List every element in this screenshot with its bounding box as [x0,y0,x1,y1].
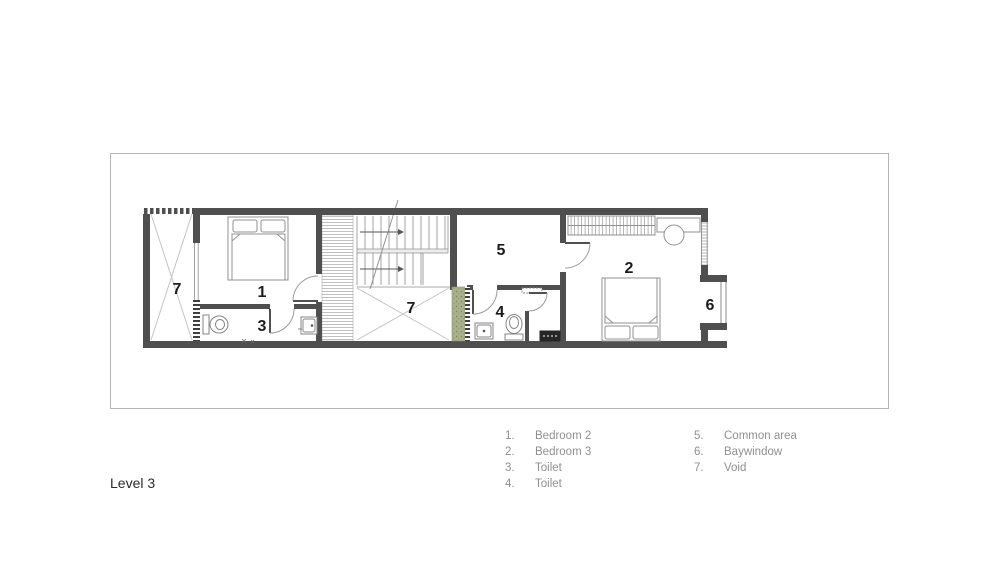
room-label-bedroom2: 2 [625,260,634,277]
bed2-mattress [605,278,657,323]
legend-column-2: 5. Common area 6. Baywindow 7. Void [694,428,797,476]
bed1-mattress [232,234,285,280]
stool-circle [664,225,684,245]
legend-num: 6. [694,444,724,460]
wall-baywindow-top [700,275,727,282]
wall-stair-right [450,215,457,290]
door-bedroom2 [565,243,590,268]
legend-label: Toilet [535,460,562,476]
door-toilet4-left [473,290,497,314]
wall-void-divider-upper [193,208,200,243]
wall-top-main [193,208,708,215]
legend-label: Void [724,460,746,476]
room-label-baywindow: 6 [706,297,715,314]
legend-label: Bedroom 3 [535,444,591,460]
door-toilet3 [270,309,294,333]
legend-item-bedroom3: 2. Bedroom 3 [505,444,591,460]
legend-num: 1. [505,428,535,444]
louver-top-void [143,208,193,214]
baywindow-glazing [721,282,726,323]
stair-arrowhead-lower [398,266,404,272]
legend-num: 5. [694,428,724,444]
window-bedroom1-left [193,243,200,300]
legend-num: 7. [694,460,724,476]
stair-arrowhead-upper [398,229,404,235]
wall-common-bedroom2-upper [560,215,566,243]
planter-strip [452,287,465,341]
stair-landing-rail [357,249,448,253]
legend-column-1: 1. Bedroom 2 2. Bedroom 3 3. Toilet 4. T… [505,428,591,492]
room-label-toilet4: 4 [496,304,505,321]
bedroom2-furniture [568,216,700,341]
room-label-toilet3: 3 [258,318,267,335]
legend-item-toilet3: 3. Toilet [505,460,591,476]
legend-item-baywindow: 6. Baywindow [694,444,797,460]
basin3-tap [311,324,314,327]
wall-bedroom2-right-bottom [701,330,708,341]
legend-num: 3. [505,460,535,476]
room-label-bedroom1: 1 [258,284,267,301]
louver-toilet3-left [193,300,200,341]
wall-toilet3-top-left [200,304,270,309]
legend-item-common-area: 5. Common area [694,428,797,444]
wall-toilet3-top-right [294,304,316,309]
basin4-tap [483,330,486,333]
legend-label: Baywindow [724,444,782,460]
room-label-common-area: 5 [497,242,506,259]
bed1-pillow-right [261,220,285,232]
toilet4-tank [505,334,523,340]
legend-num: 2. [505,444,535,460]
bed2-pillow-left [605,326,630,339]
legend-item-bedroom2: 1. Bedroom 2 [505,428,591,444]
toilet4-bowl-inner [510,317,519,329]
stair-core-hatch-strip [322,215,353,341]
legend-num: 4. [505,476,535,492]
room-label-void-stair: 7 [407,300,416,317]
legend-label: Common area [724,428,797,444]
wall-bedroom1-right-upper [316,215,322,274]
room-label-void-left: 7 [173,281,182,298]
door-bedroom1 [293,276,318,301]
toilet3-tank [203,315,209,334]
bed1-pillow-left [233,220,257,232]
void-left-xbrace [151,214,192,340]
toilet3-bowl-inner [216,320,225,330]
wall-bedroom2-right-top [701,215,708,222]
void-stair-xbrace [357,287,450,340]
wall-toilet4-right-lower [525,311,529,341]
wall-left-end [143,208,150,348]
legend-item-toilet4: 4. Toilet [505,476,591,492]
bed-bedroom1 [228,217,288,280]
wall-baywindow-bottom [700,323,727,330]
bed2-pillow-right [633,326,658,339]
legend-label: Bedroom 2 [535,428,591,444]
door-toilet4-right [529,293,547,311]
wall-bottom-main [143,341,727,348]
level-title: Level 3 [110,475,155,491]
legend-label: Toilet [535,476,562,492]
planter-screen-strip [465,287,470,341]
window-bedroom2-right [701,222,708,265]
wall-common-bedroom2-lower [560,272,566,341]
legend-item-void: 7. Void [694,460,797,476]
wall-bedroom2-right-mid [701,265,708,275]
